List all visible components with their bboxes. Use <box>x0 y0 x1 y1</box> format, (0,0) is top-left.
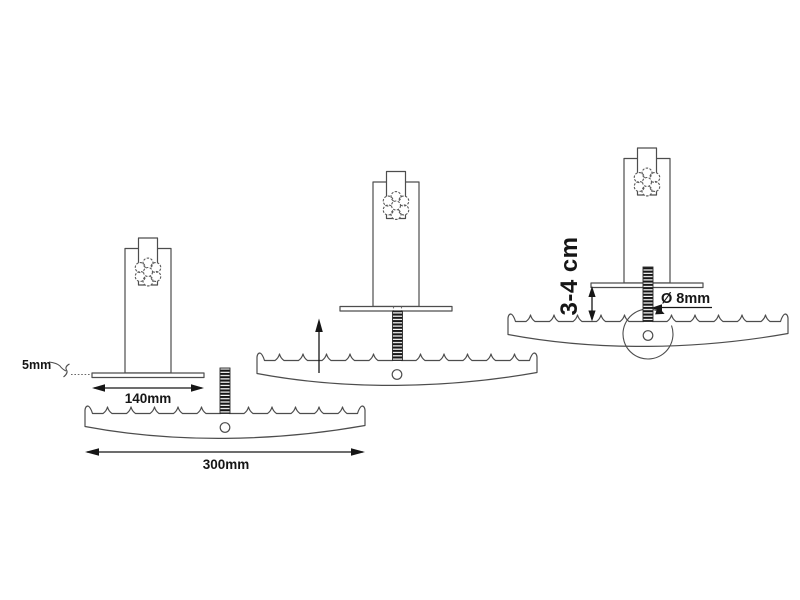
step3-group <box>508 148 788 359</box>
mount-gap-label: 3-4 cm <box>556 236 583 315</box>
dim-bolt-diameter: Ø 8mm <box>651 291 712 312</box>
plate-width-label: 140mm <box>125 391 172 406</box>
stand-step1 <box>92 238 204 378</box>
diagram-canvas: 5mm 140mm 300mm 3-4 cm Ø 8mm <box>0 0 800 600</box>
threaded-bolt-step1 <box>220 368 230 414</box>
step1-group <box>85 238 365 438</box>
dim-mount-gap: 3-4 cm <box>556 236 596 321</box>
plate-thickness-label: 5mm <box>22 358 51 372</box>
dim-plate-width: 140mm <box>92 384 204 406</box>
dim-blade-length: 300mm <box>85 448 365 472</box>
threaded-bolt-step3 <box>643 267 653 322</box>
bolt-diameter-label: Ø 8mm <box>661 291 710 307</box>
dim-plate-thickness: 5mm <box>22 358 90 377</box>
threaded-bolt-step2 <box>393 311 403 361</box>
step2-group <box>257 172 537 386</box>
assembly-diagram: 5mm 140mm 300mm 3-4 cm Ø 8mm <box>0 0 800 600</box>
blade-length-label: 300mm <box>203 457 250 472</box>
stand-step2 <box>340 172 452 312</box>
